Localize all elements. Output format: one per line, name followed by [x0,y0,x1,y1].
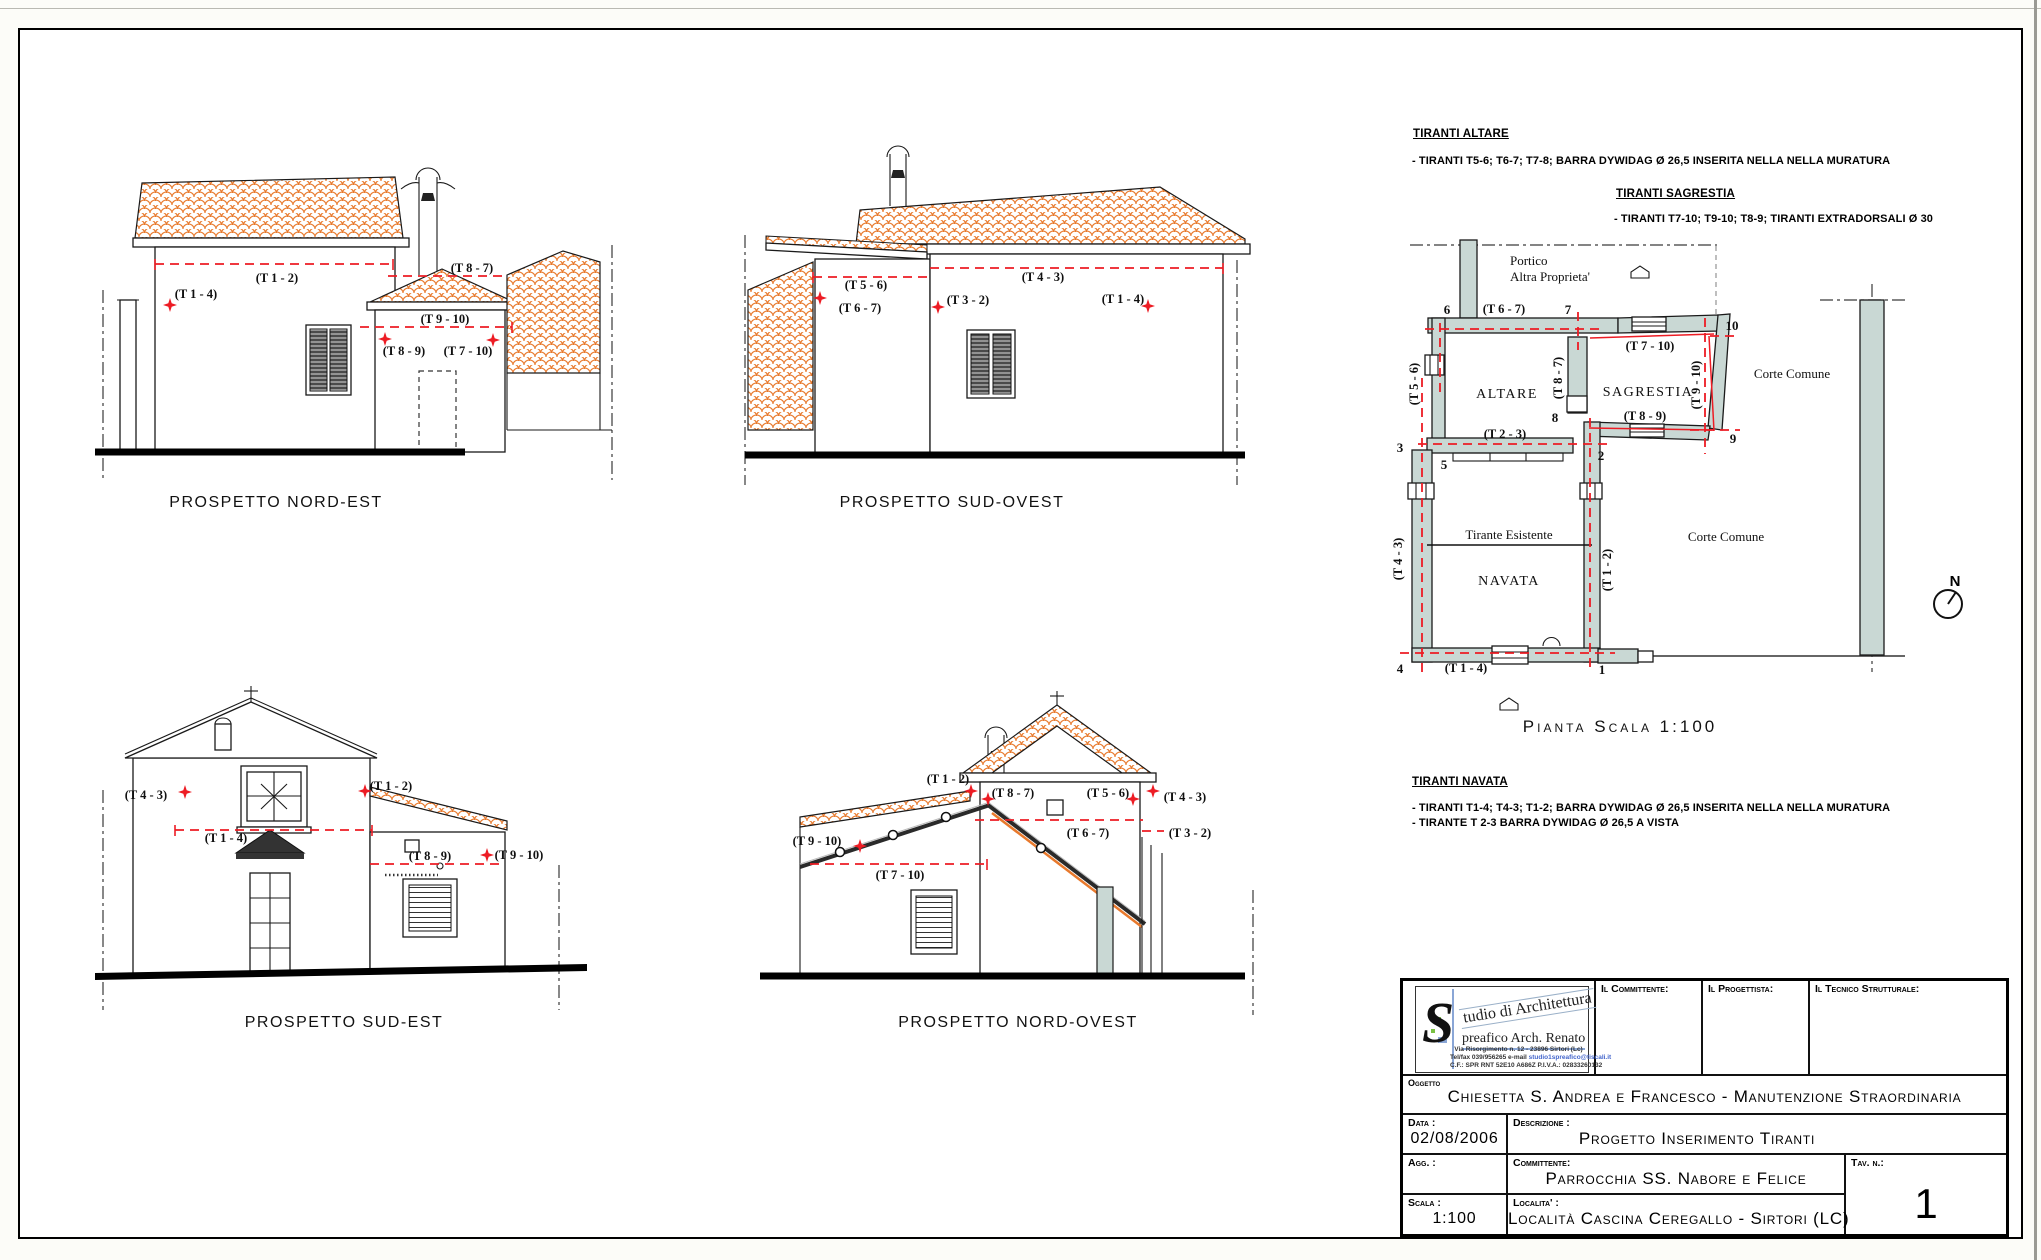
floor-plan: Tirante Esistente ALTARE SAGRESTIA NAVAT… [1392,238,1992,753]
elevation-sud-ovest: (T 5 - 6) (T 6 - 7) (T 4 - 3) (T 3 - 2) … [740,140,1275,520]
svg-text:1: 1 [1599,662,1606,677]
label-t5-6: (T 5 - 6) [845,278,887,292]
label-t4-3: (T 4 - 3) [1022,270,1064,284]
svg-text:4: 4 [1397,661,1404,676]
shuttered-window [967,330,1015,398]
title-block: S tudio di Architettura preafico Arch. R… [1400,978,2009,1237]
svg-text:8: 8 [1552,410,1559,425]
label-t8-7: (T 8 - 7) [1551,357,1565,399]
elevation-nord-est: (T 1 - 2) (T 8 - 7) (T 1 - 4) (T 9 - 10)… [95,125,635,525]
caption-prospetto-sud-est: PROSPETTO SUD-EST [184,1014,504,1032]
label-t8-9: (T 8 - 9) [1624,409,1666,423]
label-t4-3: (T 4 - 3) [125,788,167,802]
note-tiranti-navata-line2: - TIRANTE T 2-3 BARRA DYWIDAG Ø 26,5 A V… [1412,817,1679,829]
label-t9-10: (T 9 - 10) [793,834,842,848]
svg-text:2: 2 [1598,448,1605,463]
label-t9-10: (T 9 - 10) [421,312,470,326]
localita-cell: Localita' : Località Cascina Ceregallo -… [1508,1195,1846,1234]
tecnico-sign-cell: Il Tecnico Strutturale: [1810,981,2006,1076]
label-t8-9: (T 8 - 9) [383,344,425,358]
corte-comune-upper: Corte Comune [1754,366,1830,381]
right-roof [507,251,612,430]
left-pilaster [117,300,139,452]
drawing-sheet: (T 1 - 2) (T 8 - 7) (T 1 - 4) (T 9 - 10)… [0,0,2041,1260]
altar-steps [1453,453,1563,461]
north-label: N [1950,573,1961,590]
shuttered-window [306,325,351,395]
tav-value: 1 [1846,1180,2006,1228]
elevation-nord-ovest: (T 1 - 2) (T 8 - 7) (T 5 - 6) (T 4 - 3) … [730,685,1275,1040]
label-t8-9: (T 8 - 9) [409,849,451,863]
logo-cell: S tudio di Architettura preafico Arch. R… [1403,981,1596,1076]
label-t1-2: (T 1 - 2) [927,772,969,786]
right-posts [1142,837,1162,976]
label-t6-7: (T 6 - 7) [839,301,881,315]
altra-proprieta-label: Altra Proprieta' [1510,269,1590,284]
bell-tower [401,168,455,275]
label-t1-4: (T 1 - 4) [175,287,217,301]
committente-sign-label: Il Committente: [1601,983,1668,995]
label-t8-7: (T 8 - 7) [451,261,493,275]
svg-text:10: 10 [1726,318,1739,333]
committente-cell: Committente: Parrocchia SS. Nabore e Fel… [1508,1155,1846,1195]
progettista-sign-cell: Il Progettista: [1703,981,1810,1076]
scala-label: Scala : [1408,1197,1441,1209]
corte-comune-lower: Corte Comune [1688,529,1764,544]
committente-sign-cell: Il Committente: [1596,981,1703,1076]
agg-cell: Agg. : [1403,1155,1508,1195]
svg-text:Tirante Esistente: Tirante Esistente [1465,527,1552,542]
label-t1-2: (T 1 - 2) [1600,549,1614,591]
note-tiranti-altare-line: - TIRANTI T5-6; T6-7; T7-8; BARRA DYWIDA… [1412,155,1890,167]
note-tiranti-altare-title: TIRANTI ALTARE [1413,128,1509,140]
committente-value: Parrocchia SS. Nabore e Felice [1508,1169,1844,1189]
boundary-wall [1860,300,1884,655]
sheet-top-edge [0,8,2041,9]
louvered-window [911,890,957,954]
label-t1-4: (T 1 - 4) [205,831,247,845]
main-wall [980,782,1140,976]
note-tiranti-sagrestia-title: TIRANTI SAGRESTIA [1616,188,1735,200]
progettista-sign-label: Il Progettista: [1708,983,1773,995]
svg-text:5: 5 [1441,457,1448,472]
oggetto-value: Chiesetta S. Andrea e Francesco - Manute… [1403,1087,2006,1107]
label-t7-10: (T 7 - 10) [444,344,493,358]
contacts-line: Tel/fax 039/956265 e-mail [1450,1054,1529,1061]
wall-openings [1408,317,1666,664]
main-roof [133,177,409,247]
room-altare: ALTARE [1476,387,1538,402]
svg-text:3: 3 [1397,440,1404,455]
label-t6-7: (T 6 - 7) [1483,302,1525,316]
descrizione-value: Progetto Inserimento Tiranti [1508,1129,1886,1149]
note-tiranti-navata-title: TIRANTI NAVATA [1412,776,1508,788]
caption-prospetto-nord-est: PROSPETTO NORD-EST [116,494,436,512]
logo-studio-text: tudio di Architettura [1459,988,1596,1029]
label-t2-3: (T 2 - 3) [1484,427,1526,441]
agg-label: Agg. : [1408,1157,1436,1169]
label-t1-2: (T 1 - 2) [370,779,412,793]
data-label: Data : [1408,1117,1435,1129]
fiscal-line: C.F.: SPR RNT 52E10 A686Z P.I.V.A.: 0283… [1450,1062,1602,1069]
side-wing [370,787,507,970]
caption-prospetto-nord-ovest: PROSPETTO NORD-OVEST [858,1014,1178,1032]
label-t3-2: (T 3 - 2) [947,293,989,307]
north-indicator: N [1934,573,1962,618]
scala-value: 1:100 [1403,1210,1506,1228]
data-cell: Data : 02/08/2006 [1403,1115,1508,1155]
label-t9-10: (T 9 - 10) [1689,361,1703,410]
main-gable-roof [960,691,1156,782]
logo-address: Via Risorgimento n. 12 - 23896 Sirtori (… [1450,1046,1587,1070]
side-building-wall [375,310,505,452]
label-t5-6: (T 5 - 6) [1087,786,1129,800]
descrizione-cell: Descrizione : Progetto Inserimento Tiran… [1508,1115,2006,1155]
svg-text:6: 6 [1444,302,1451,317]
label-t3-2: (T 3 - 2) [1169,826,1211,840]
studio-logo: S tudio di Architettura preafico Arch. R… [1415,986,1589,1073]
data-value: 02/08/2006 [1403,1130,1506,1148]
localita-value: Località Cascina Ceregallo - Sirtori (LC… [1508,1209,1844,1229]
descrizione-label: Descrizione : [1513,1117,1570,1129]
caption-prospetto-sud-ovest: PROSPETTO SUD-OVEST [792,494,1112,512]
label-t6-7: (T 6 - 7) [1067,826,1109,840]
label-t4-3: (T 4 - 3) [1392,538,1405,580]
svg-text:7: 7 [1565,302,1572,317]
address-line: Via Risorgimento n. 12 - 23896 Sirtori (… [1454,1046,1582,1053]
label-t5-6: (T 5 - 6) [1407,363,1421,405]
elevation-sud-est: (T 4 - 3) (T 1 - 2) (T 1 - 4) (T 8 - 9) … [95,680,595,1040]
tecnico-sign-label: Il Tecnico Strutturale: [1815,983,1919,995]
label-t4-3: (T 4 - 3) [1164,790,1206,804]
label-t7-10: (T 7 - 10) [1626,339,1675,353]
label-t1-2: (T 1 - 2) [256,271,298,285]
tav-cell: Tav. n.: 1 [1846,1155,2006,1234]
label-t1-4: (T 1 - 4) [1102,292,1144,306]
left-wing [748,236,930,455]
note-tiranti-navata-line1: - TIRANTI T1-4; T4-3; T1-2; BARRA DYWIDA… [1412,802,1890,814]
label-t7-10: (T 7 - 10) [876,868,925,882]
oggetto-cell: Oggetto Chiesetta S. Andrea e Francesco … [1403,1076,2006,1115]
bell-tower [887,146,909,206]
facade-window [237,766,311,833]
committente-label: Committente: [1513,1157,1570,1169]
svg-text:9: 9 [1730,431,1737,446]
room-sagrestia: SAGRESTIA [1603,385,1694,400]
note-tiranti-sagrestia-line: - TIRANTI T7-10; T9-10; T8-9; TIRANTI EX… [1614,213,1933,225]
tav-label: Tav. n.: [1851,1157,1884,1169]
caption-pianta: Pianta Scala 1:100 [1460,717,1780,737]
portico-label: Portico [1510,253,1548,268]
label-t8-7: (T 8 - 7) [992,786,1034,800]
room-navata: NAVATA [1478,574,1540,589]
scala-cell: Scala : 1:100 [1403,1195,1508,1234]
sheet-right-edge [2034,0,2037,1260]
label-t1-4: (T 1 - 4) [1445,661,1487,675]
label-t9-10: (T 9 - 10) [495,848,544,862]
tirante-esistente: Tirante Esistente [1427,527,1592,545]
localita-label: Localita' : [1513,1197,1559,1209]
portico-post [1097,887,1113,976]
